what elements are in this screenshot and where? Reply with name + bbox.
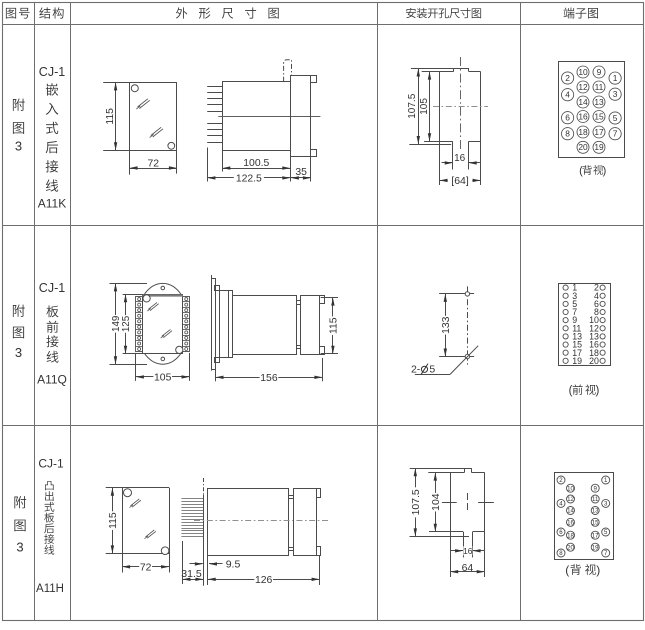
svg-text:16: 16 [454,153,466,164]
svg-text:20: 20 [578,142,588,152]
svg-text:105: 105 [419,98,430,115]
svg-text:20: 20 [567,544,574,551]
svg-text:72: 72 [147,158,159,169]
svg-text:19: 19 [592,544,599,551]
svg-text:3: 3 [613,89,618,99]
svg-text:14: 14 [578,97,588,107]
svg-text:7: 7 [604,550,608,557]
svg-text:16: 16 [578,111,588,121]
svg-text:9: 9 [597,67,602,77]
svg-text:107.5: 107.5 [411,489,422,515]
svg-text:3: 3 [604,501,608,508]
svg-text:(: ( [579,165,583,177]
svg-text:A11K: A11K [38,197,66,211]
svg-text:3: 3 [15,345,22,360]
svg-text:1: 1 [613,73,618,83]
svg-text:1: 1 [604,477,608,484]
svg-text:5: 5 [613,113,618,123]
svg-text:12: 12 [578,82,588,92]
svg-text:): ) [596,563,600,577]
svg-text:122.5: 122.5 [236,174,262,185]
svg-text:9: 9 [594,485,598,492]
svg-text:133: 133 [441,316,452,334]
svg-text:16: 16 [463,546,473,556]
svg-text:19: 19 [594,142,604,152]
svg-text:107.5: 107.5 [407,93,418,118]
svg-text:(: ( [565,563,569,577]
svg-text:10: 10 [567,485,574,492]
svg-text:115: 115 [105,108,116,125]
svg-text:19: 19 [572,356,582,366]
svg-text:14: 14 [567,508,574,515]
svg-text:CJ-1: CJ-1 [39,65,65,79]
svg-text:64: 64 [462,562,474,574]
svg-text:7: 7 [613,129,618,139]
svg-text:CJ-1: CJ-1 [38,457,64,471]
svg-text:31.5: 31.5 [181,568,202,580]
svg-text:18: 18 [578,127,588,137]
svg-text:10: 10 [578,67,588,77]
svg-text:100.5: 100.5 [243,158,269,169]
svg-text:35: 35 [295,167,307,178]
svg-text:12: 12 [567,496,574,503]
svg-text:2: 2 [565,73,570,83]
svg-text:11: 11 [595,82,604,92]
svg-text:17: 17 [594,127,604,137]
svg-text:5: 5 [604,529,608,536]
svg-text:115: 115 [108,512,119,529]
svg-text:): ) [595,385,599,397]
svg-text:A11Q: A11Q [37,373,67,387]
svg-text:3: 3 [16,539,23,554]
svg-text:156: 156 [260,373,278,384]
svg-text:20: 20 [589,356,599,366]
svg-text:4: 4 [565,90,570,100]
svg-text:15: 15 [592,519,599,526]
svg-text:15: 15 [594,111,604,121]
svg-text:(: ( [569,385,573,397]
svg-text:104: 104 [431,493,442,511]
svg-text:5: 5 [429,363,435,375]
svg-text:CJ-1: CJ-1 [39,281,65,295]
svg-text:[64]: [64] [451,175,469,187]
svg-text:13: 13 [594,97,604,107]
svg-text:6: 6 [565,113,570,123]
svg-text:9.5: 9.5 [226,559,241,571]
svg-text:13: 13 [592,508,599,515]
svg-text:8: 8 [565,129,570,139]
svg-text:2-: 2- [411,363,421,375]
svg-text:18: 18 [567,532,574,539]
svg-text:17: 17 [592,532,599,539]
svg-text:A11H: A11H [36,583,64,595]
svg-text:16: 16 [567,519,574,526]
svg-text:): ) [603,165,607,177]
svg-text:3: 3 [15,139,22,154]
svg-text:72: 72 [140,562,152,573]
svg-text:11: 11 [592,496,599,503]
svg-text:126: 126 [255,575,273,586]
svg-text:115: 115 [329,317,340,334]
svg-text:125: 125 [121,315,132,332]
svg-text:105: 105 [154,373,172,384]
